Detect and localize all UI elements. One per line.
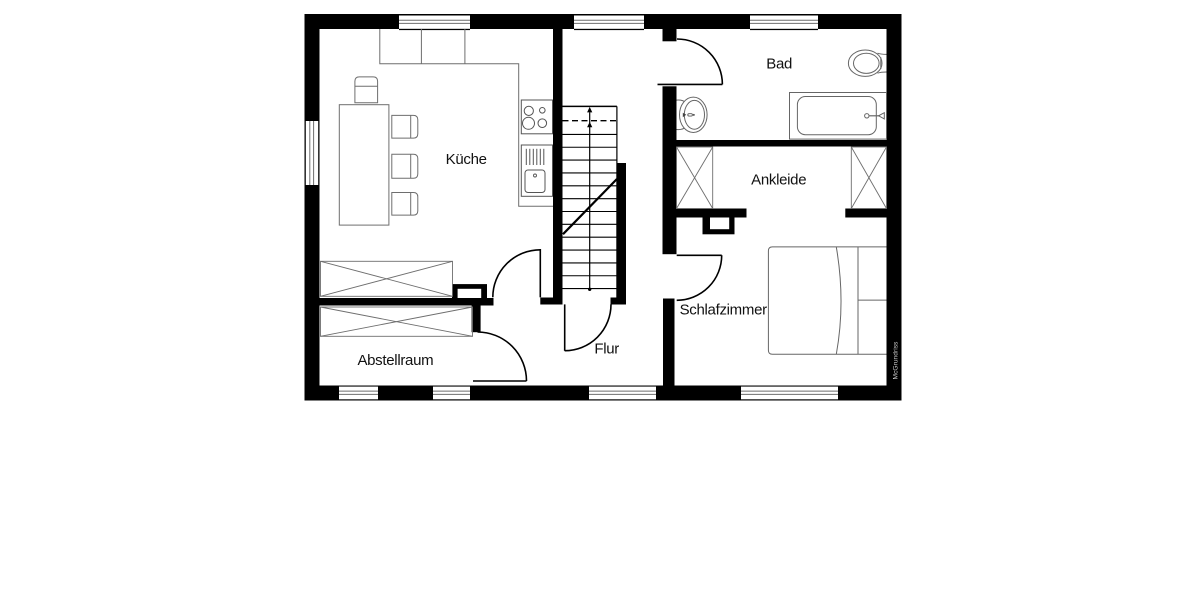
svg-text:McGrundriss: McGrundriss (893, 341, 900, 380)
svg-text:Schlafzimmer: Schlafzimmer (680, 301, 768, 318)
svg-text:Küche: Küche (446, 151, 487, 168)
svg-text:Bad: Bad (766, 56, 792, 73)
svg-text:Flur: Flur (594, 340, 619, 357)
svg-text:Ankleide: Ankleide (751, 172, 806, 189)
svg-text:Abstellraum: Abstellraum (357, 352, 433, 369)
